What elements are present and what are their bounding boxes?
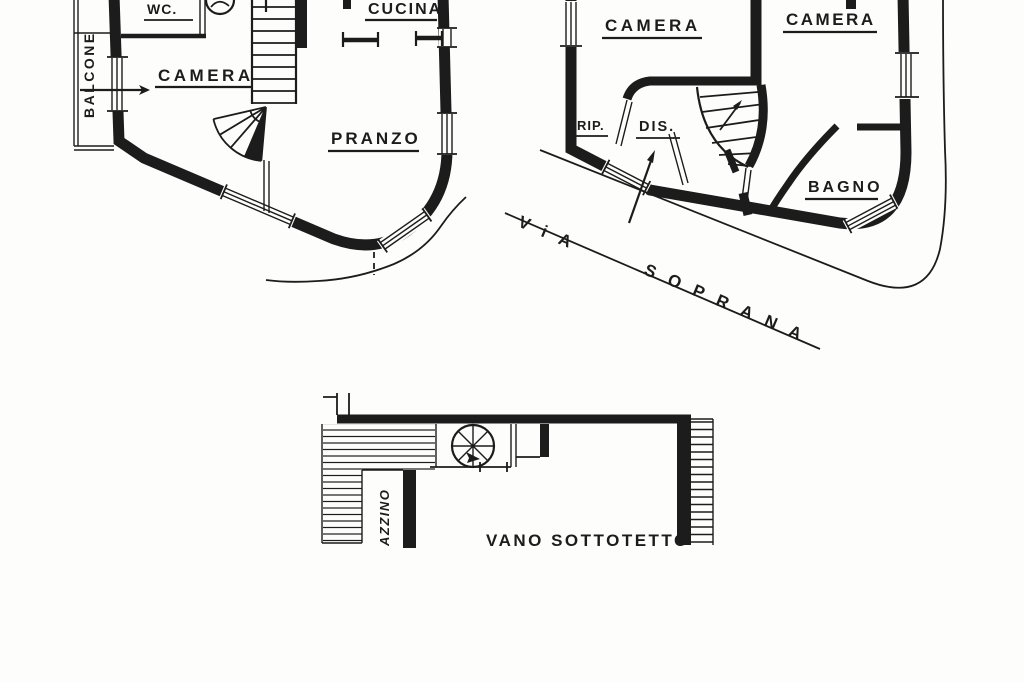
floor-plan-sheet: BALCONE	[0, 0, 1024, 682]
flue-lines	[323, 393, 349, 415]
window	[895, 52, 919, 99]
terrazzino-label: AZZINO	[377, 489, 392, 547]
rip-partition	[616, 100, 632, 146]
room-label-wc: WC.	[147, 1, 177, 17]
room-label-cucina: CUCINA	[368, 1, 442, 18]
stair-treads	[252, 7, 296, 103]
interior-step-wall	[516, 424, 549, 457]
room-label-camera: CAMERA	[158, 66, 254, 85]
staircase	[213, 0, 307, 213]
room-label-balcone: BALCONE	[81, 31, 97, 118]
door-swing-symbol	[206, 0, 234, 14]
street-name-soprana: SOPRANA	[641, 260, 817, 349]
staircase	[697, 85, 766, 209]
roof-slope-hatch	[691, 419, 713, 545]
window	[560, 1, 582, 47]
right-wall	[677, 419, 691, 545]
hall-partition	[669, 132, 688, 185]
hall-wall	[627, 81, 761, 99]
room-label-dis: DIS.	[639, 119, 675, 135]
street-label: ViA SOPRANA	[515, 212, 817, 349]
room-label-bagno: BAGNO	[808, 179, 883, 196]
first-floor-plan: BALCONE	[74, 0, 466, 282]
balcony: BALCONE	[74, 0, 114, 150]
street-edge-line	[540, 0, 946, 288]
window	[219, 184, 297, 229]
window	[376, 207, 433, 253]
floor-plan-drawing: BALCONE	[0, 0, 1024, 682]
wall-stub	[846, 0, 856, 9]
room-label-pranzo: PRANZO	[331, 129, 421, 148]
window	[437, 113, 457, 155]
second-floor-plan: CAMERA CAMERA RIP. DIS. BAGNO	[560, 0, 919, 234]
room-label-camera-right: CAMERA	[786, 10, 876, 29]
street-name-via: ViA	[515, 212, 587, 257]
arrowhead-icon	[647, 150, 655, 163]
window	[107, 57, 128, 111]
spiral-staircase	[430, 424, 516, 472]
room-label-vano-sottotetto: VANO SOTTOTETTO	[486, 531, 690, 550]
bagno-wall	[768, 126, 837, 215]
room-label-camera-left: CAMERA	[605, 16, 701, 35]
room-label-rip: RIP.	[577, 118, 605, 133]
terrazzino-wall	[403, 470, 416, 548]
attic-plan: AZZINO VANO SOTTOTETTO	[322, 393, 713, 550]
